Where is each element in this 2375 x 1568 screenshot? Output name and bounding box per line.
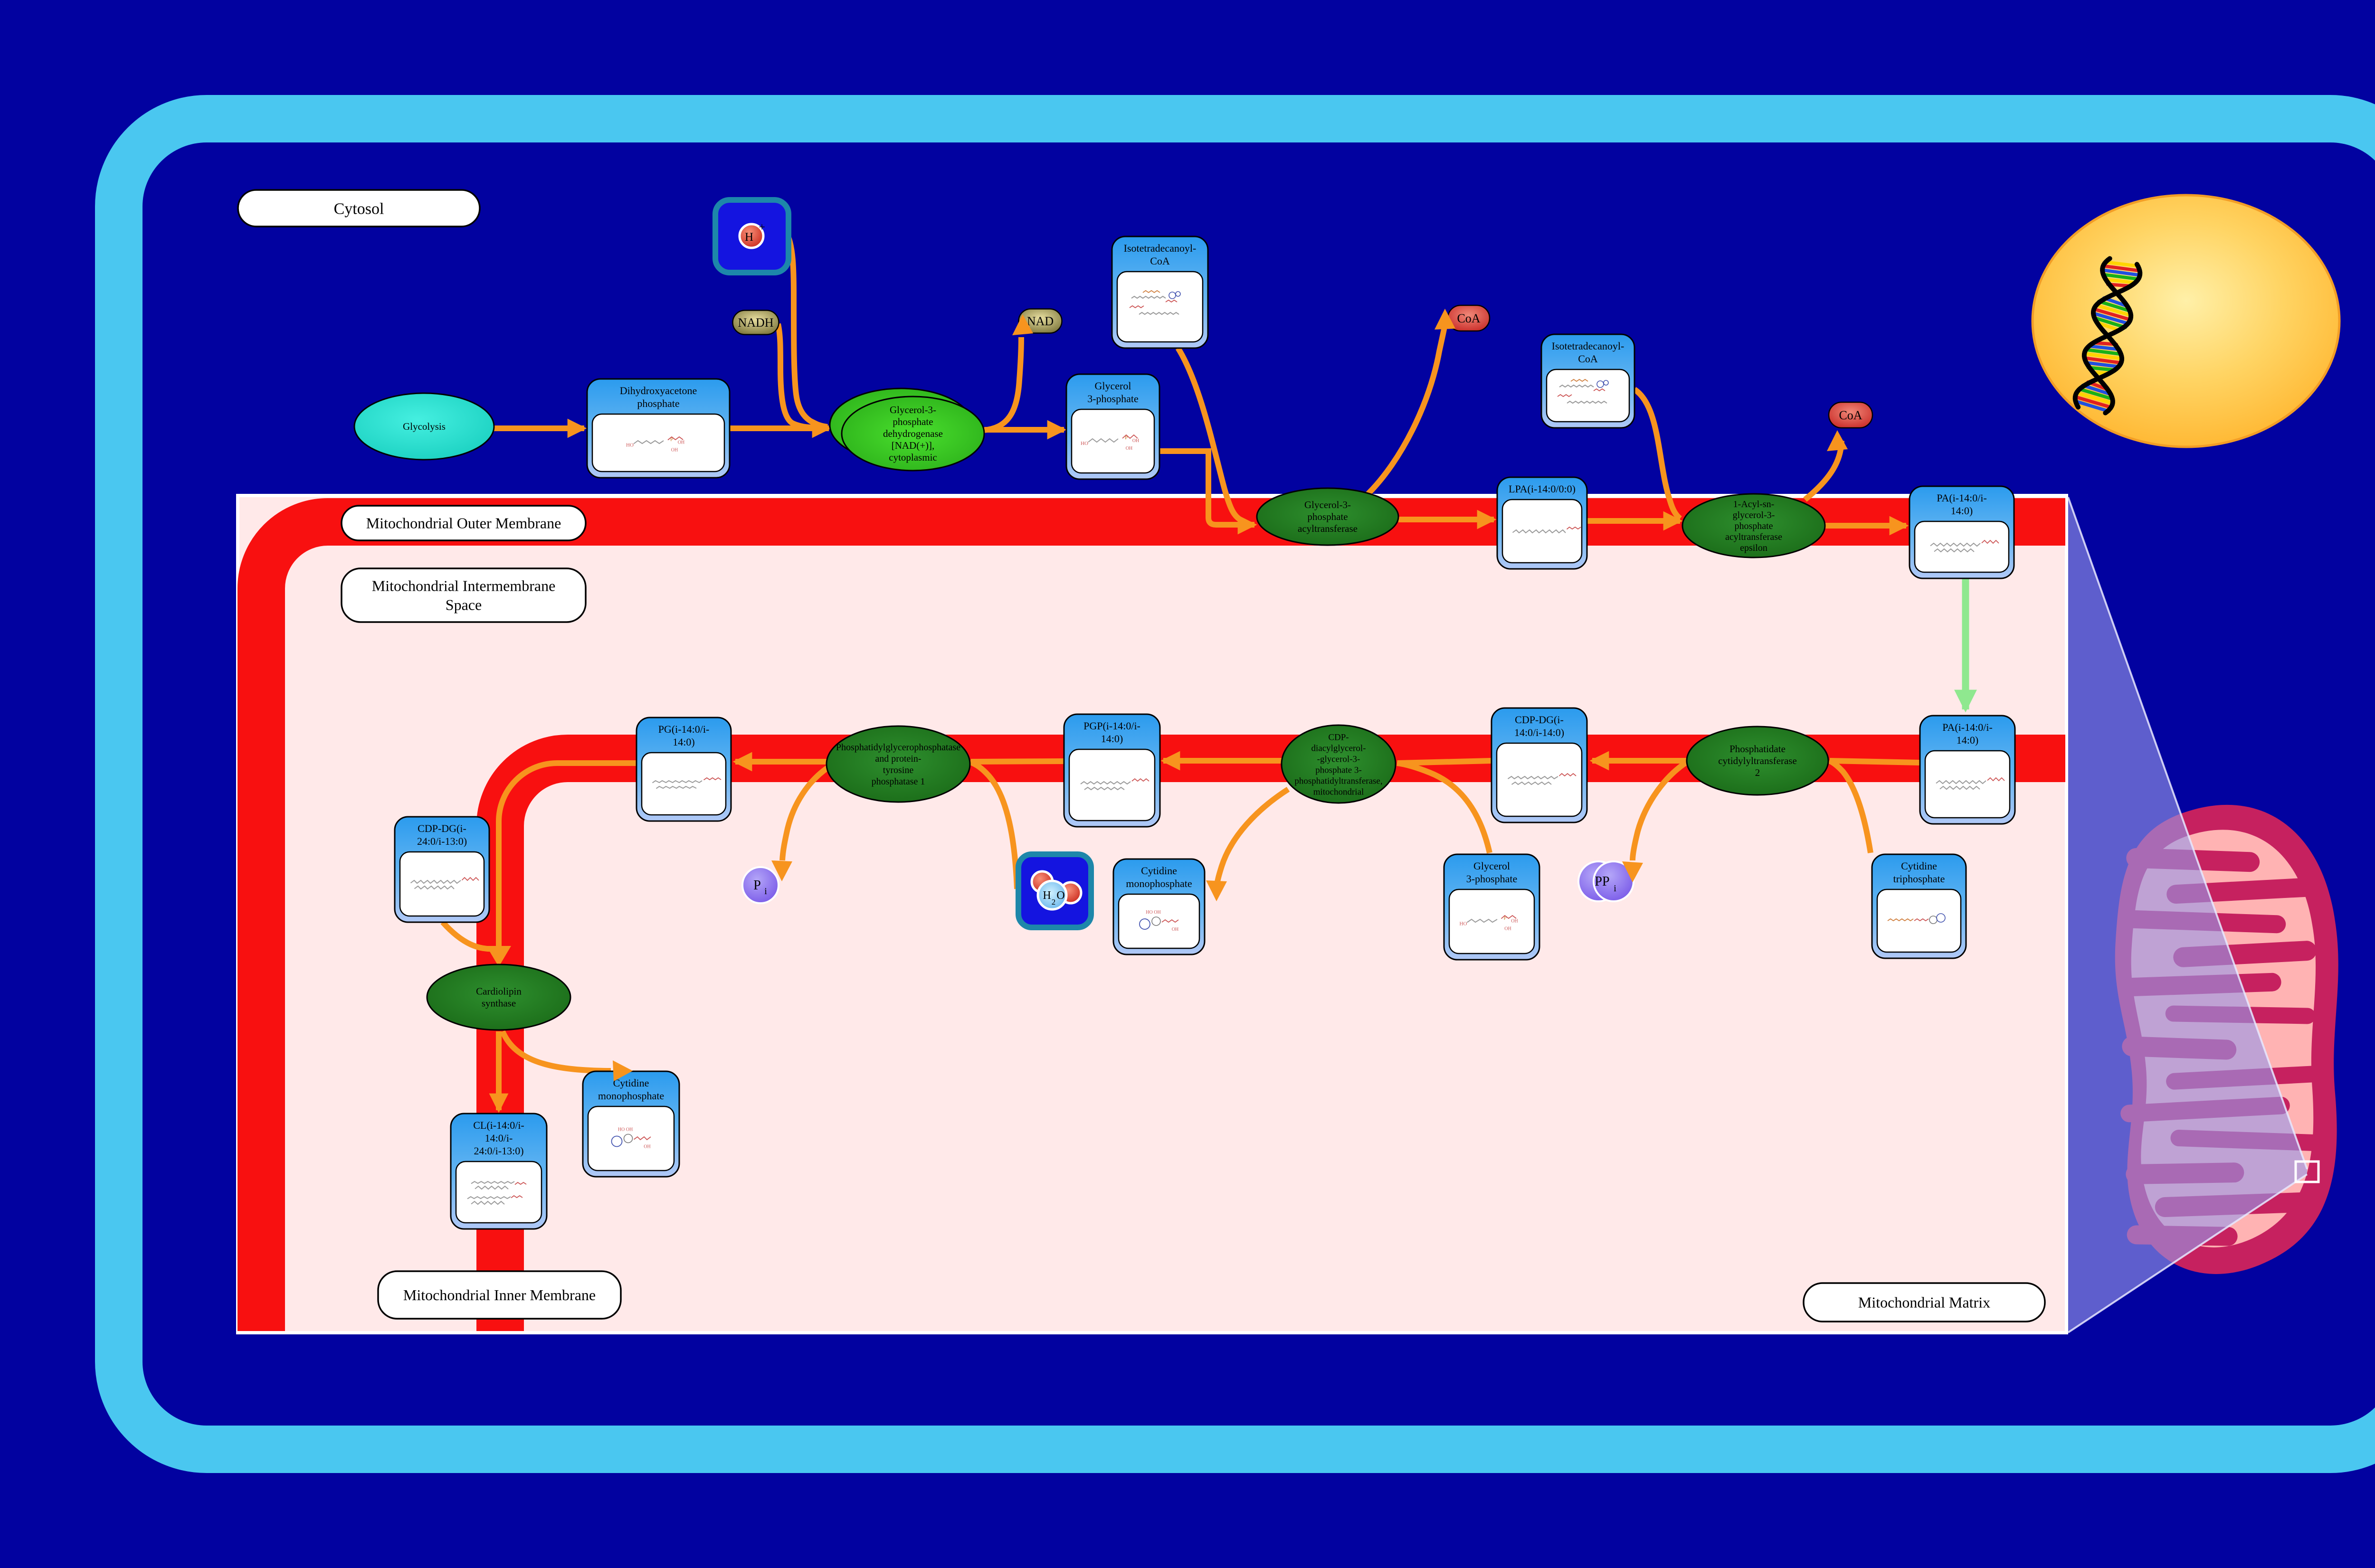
svg-text:PA(i-14:0/i-: PA(i-14:0/i- xyxy=(1942,721,1993,733)
svg-text:OH: OH xyxy=(678,440,684,445)
svg-text:phosphate: phosphate xyxy=(1734,521,1773,531)
svg-text:2: 2 xyxy=(1755,767,1760,778)
svg-text:Phosphatidate: Phosphatidate xyxy=(1729,743,1786,755)
svg-text:PGP(i-14:0/i-: PGP(i-14:0/i- xyxy=(1083,720,1140,732)
svg-text:Phosphatidylglycerophosphatase: Phosphatidylglycerophosphatase xyxy=(836,742,960,753)
svg-text:epsilon: epsilon xyxy=(1740,543,1767,553)
svg-text:Cytidine: Cytidine xyxy=(1141,865,1177,877)
svg-text:14:0): 14:0) xyxy=(1957,734,1978,746)
svg-text:+: + xyxy=(759,221,765,234)
svg-text:and protein-: and protein- xyxy=(875,754,921,764)
svg-text:triphosphate: triphosphate xyxy=(1893,873,1945,885)
svg-text:diacylglycerol-: diacylglycerol- xyxy=(1311,744,1366,754)
svg-text:Cytosol: Cytosol xyxy=(334,200,384,217)
svg-text:Glycerol: Glycerol xyxy=(1095,380,1131,392)
svg-text:cytoplasmic: cytoplasmic xyxy=(889,452,937,463)
svg-text:synthase: synthase xyxy=(482,998,516,1009)
svg-text:NADH: NADH xyxy=(738,316,773,330)
svg-text:-glycerol-3-: -glycerol-3- xyxy=(1317,755,1360,765)
svg-text:CL(i-14:0/i-: CL(i-14:0/i- xyxy=(473,1119,524,1131)
svg-text:H: H xyxy=(745,231,753,244)
svg-text:CoA: CoA xyxy=(1150,255,1170,267)
svg-text:Glycerol-3-: Glycerol-3- xyxy=(890,404,936,416)
svg-text:PA(i-14:0/i-: PA(i-14:0/i- xyxy=(1937,492,1987,504)
svg-text:3-phosphate: 3-phosphate xyxy=(1466,873,1518,885)
svg-text:CDP-DG(i-: CDP-DG(i- xyxy=(1515,714,1564,726)
svg-text:OH: OH xyxy=(671,448,678,453)
svg-text:OH: OH xyxy=(1504,926,1511,932)
svg-text:Space: Space xyxy=(446,596,482,614)
svg-text:14:0/i-14:0): 14:0/i-14:0) xyxy=(1514,727,1564,738)
svg-text:OH: OH xyxy=(1511,919,1518,924)
svg-text:i: i xyxy=(764,886,767,897)
svg-text:OH: OH xyxy=(644,1144,650,1150)
svg-text:HO: HO xyxy=(1081,441,1088,446)
svg-text:H: H xyxy=(1043,889,1051,902)
svg-text:HO OH: HO OH xyxy=(618,1127,633,1133)
svg-text:HO: HO xyxy=(1460,921,1467,927)
svg-text:glycerol-3-: glycerol-3- xyxy=(1733,510,1775,520)
svg-text:HO OH: HO OH xyxy=(1146,910,1160,915)
svg-text:HO: HO xyxy=(626,443,634,448)
svg-text:Cytidine: Cytidine xyxy=(1901,860,1937,872)
svg-text:Glycerol: Glycerol xyxy=(1473,860,1510,872)
svg-text:14:0/i-: 14:0/i- xyxy=(485,1132,513,1144)
svg-text:monophosphate: monophosphate xyxy=(1126,878,1192,889)
svg-text:CoA: CoA xyxy=(1839,408,1862,422)
svg-text:Cytidine: Cytidine xyxy=(613,1077,649,1089)
svg-text:CDP-: CDP- xyxy=(1328,733,1349,743)
svg-text:Mitochondrial Inner Membrane: Mitochondrial Inner Membrane xyxy=(403,1286,596,1304)
svg-text:phosphatase 1: phosphatase 1 xyxy=(872,776,925,787)
svg-text:14:0): 14:0) xyxy=(1101,733,1123,745)
svg-text:phosphate: phosphate xyxy=(1307,511,1348,522)
svg-text:3-phosphate: 3-phosphate xyxy=(1087,393,1139,405)
svg-text:NAD: NAD xyxy=(1027,314,1054,328)
svg-text:phosphate: phosphate xyxy=(637,397,679,409)
svg-text:OH: OH xyxy=(1132,438,1139,444)
svg-text:Mitochondrial Intermembrane: Mitochondrial Intermembrane xyxy=(372,577,556,595)
svg-text:Glycerol-3-: Glycerol-3- xyxy=(1304,499,1351,510)
svg-text:Glycolysis: Glycolysis xyxy=(403,421,446,432)
svg-text:acyltransferase: acyltransferase xyxy=(1298,523,1358,534)
svg-text:Cardiolipin: Cardiolipin xyxy=(476,986,522,997)
svg-text:Mitochondrial Matrix: Mitochondrial Matrix xyxy=(1858,1294,1990,1311)
svg-text:dehydrogenase: dehydrogenase xyxy=(883,428,943,439)
svg-text:2: 2 xyxy=(1052,897,1056,907)
svg-text:14:0): 14:0) xyxy=(1951,505,1973,517)
svg-text:CoA: CoA xyxy=(1457,312,1480,325)
svg-text:LPA(i-14:0/0:0): LPA(i-14:0/0:0) xyxy=(1509,483,1576,495)
svg-text:mitochondrial: mitochondrial xyxy=(1313,787,1364,797)
svg-text:i: i xyxy=(1614,883,1616,894)
svg-text:monophosphate: monophosphate xyxy=(598,1090,664,1102)
svg-text:Mitochondrial Outer Membrane: Mitochondrial Outer Membrane xyxy=(366,515,561,532)
svg-text:Isotetradecanoyl-: Isotetradecanoyl- xyxy=(1124,242,1197,254)
svg-text:14:0): 14:0) xyxy=(673,736,694,748)
svg-text:PG(i-14:0/i-: PG(i-14:0/i- xyxy=(658,723,710,735)
svg-text:acyltransferase: acyltransferase xyxy=(1725,532,1782,542)
svg-text:1-Acyl-sn-: 1-Acyl-sn- xyxy=(1733,499,1775,510)
svg-text:Dihydroxyacetone: Dihydroxyacetone xyxy=(620,385,697,397)
svg-text:24:0/i-13:0): 24:0/i-13:0) xyxy=(417,835,467,847)
svg-text:CDP-DG(i-: CDP-DG(i- xyxy=(418,822,466,834)
svg-text:[NAD(+)],: [NAD(+)], xyxy=(892,440,935,451)
svg-text:OH: OH xyxy=(1172,927,1178,932)
svg-text:tyrosine: tyrosine xyxy=(883,765,914,775)
svg-text:24:0/i-13:0): 24:0/i-13:0) xyxy=(474,1145,523,1157)
svg-text:phosphate 3-: phosphate 3- xyxy=(1315,765,1362,775)
svg-text:Isotetradecanoyl-: Isotetradecanoyl- xyxy=(1552,340,1624,352)
svg-text:PP: PP xyxy=(1595,874,1609,889)
svg-text:phosphate: phosphate xyxy=(893,416,933,427)
svg-text:CoA: CoA xyxy=(1578,353,1598,365)
svg-text:phosphatidyltransferase,: phosphatidyltransferase, xyxy=(1294,776,1382,786)
svg-text:OH: OH xyxy=(1126,446,1132,451)
svg-text:P: P xyxy=(753,878,761,893)
svg-text:O: O xyxy=(1056,889,1064,902)
svg-text:cytidylyltransferase: cytidylyltransferase xyxy=(1718,755,1797,766)
